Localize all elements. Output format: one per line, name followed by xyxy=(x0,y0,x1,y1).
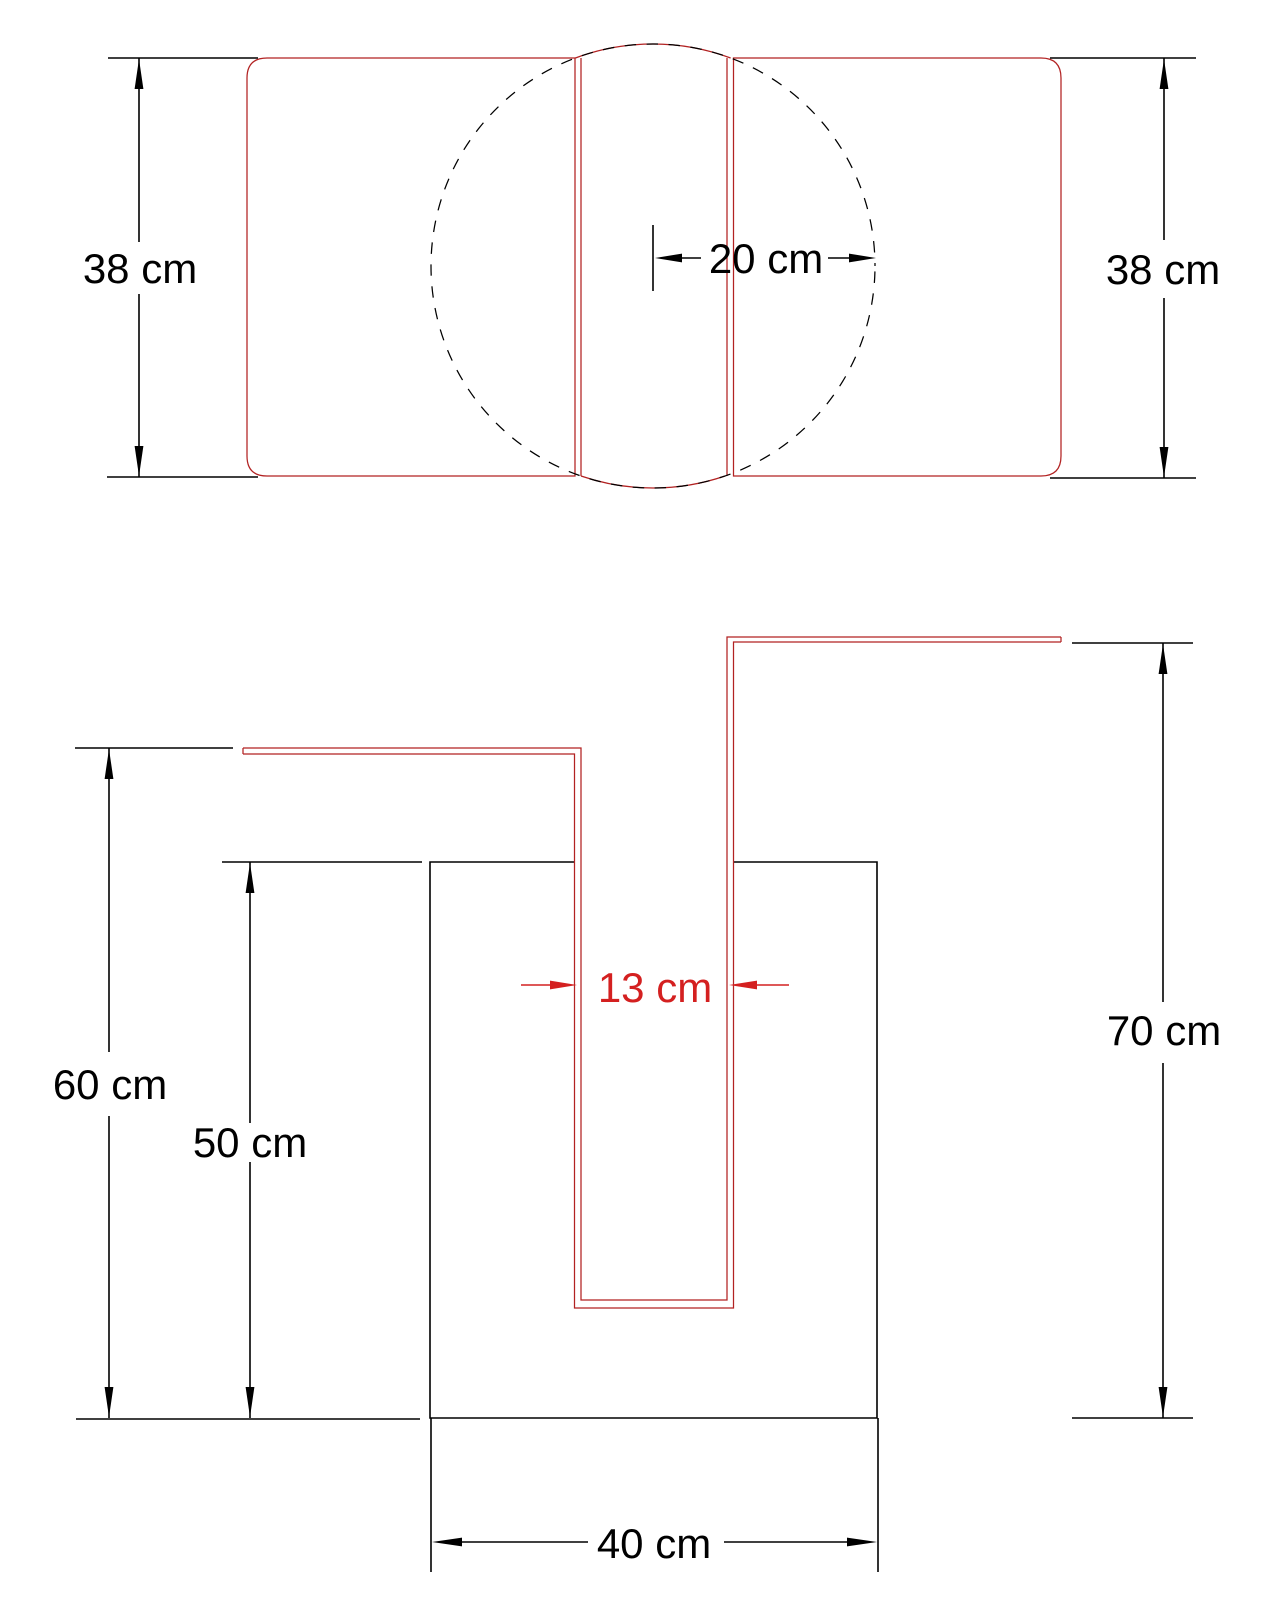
svg-text:60 cm: 60 cm xyxy=(53,1061,167,1108)
svg-text:13 cm: 13 cm xyxy=(598,964,712,1011)
svg-text:50 cm: 50 cm xyxy=(193,1119,307,1166)
svg-text:40 cm: 40 cm xyxy=(597,1520,711,1567)
svg-text:20 cm: 20 cm xyxy=(709,235,823,282)
svg-text:70 cm: 70 cm xyxy=(1107,1007,1221,1054)
svg-text:38 cm: 38 cm xyxy=(83,245,197,292)
svg-text:38 cm: 38 cm xyxy=(1106,246,1220,293)
